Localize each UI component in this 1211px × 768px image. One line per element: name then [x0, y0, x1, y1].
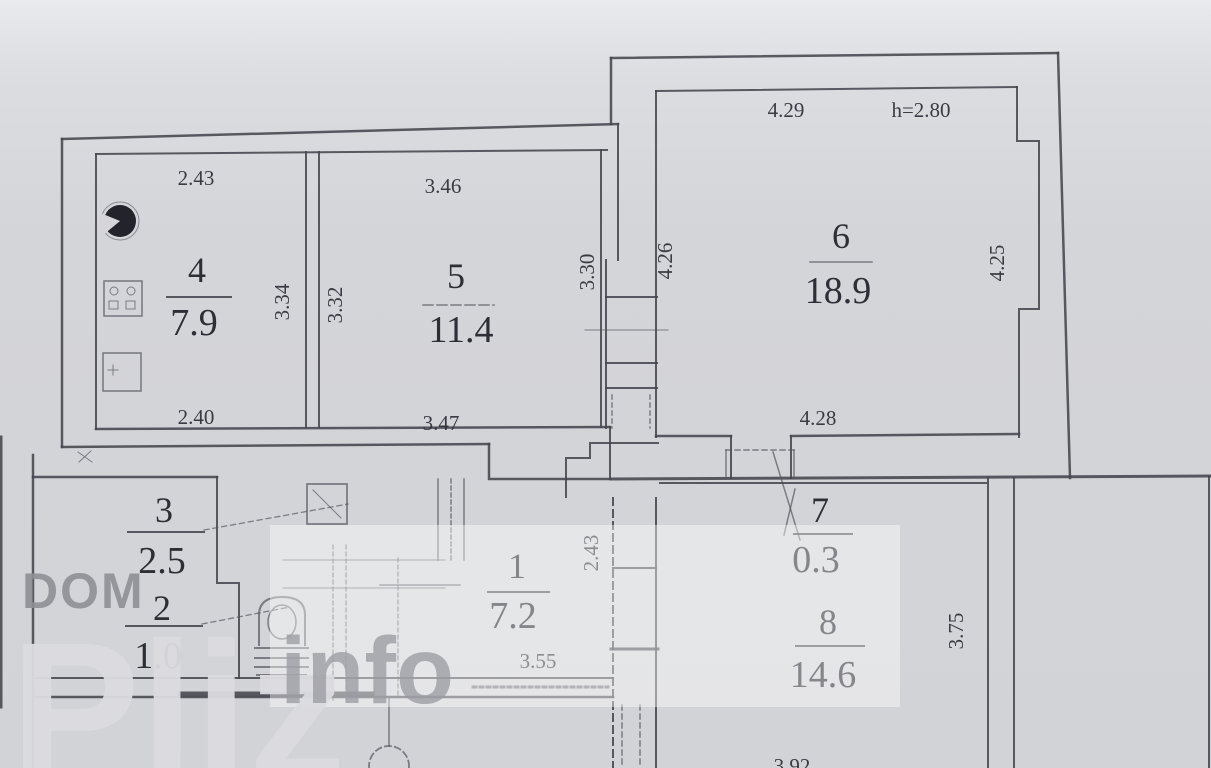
room4-number: 4: [188, 250, 206, 290]
dim-r6-right: 4.25: [985, 245, 1009, 282]
dim-r6-left: 4.26: [653, 243, 677, 280]
dim-r4-top: 2.43: [178, 166, 215, 190]
dim-shaft: 3.30: [575, 254, 599, 291]
dim-r5-top: 3.46: [425, 174, 462, 198]
cabinet-icon: [103, 353, 141, 391]
dim-r5-bottom: 3.47: [423, 411, 460, 435]
room6-number: 6: [832, 216, 850, 256]
kitchen-sink-icon: [98, 202, 139, 240]
washbasin-icon: [307, 484, 347, 524]
watermark-info: info: [280, 618, 454, 724]
room7-number: 7: [811, 490, 829, 530]
room3-area: 2.5: [138, 540, 186, 582]
dim-r4-right: 3.34: [270, 283, 294, 320]
room5-area: 11.4: [428, 309, 493, 351]
dim-r8-right: 3.75: [944, 613, 968, 650]
dim-r6-bottom: 4.28: [800, 406, 837, 430]
dim-ceiling-height: h=2.80: [891, 98, 950, 122]
dim-r5-left: 3.32: [323, 287, 347, 324]
room3-number: 3: [155, 490, 173, 530]
room4-area: 7.9: [170, 302, 218, 344]
floor-plan-drawing: 2.43 3.46 4.29 h=2.80 2.40 3.47 4.28 3.5…: [0, 0, 1211, 768]
dim-r6-top: 4.29: [768, 98, 805, 122]
room6-area: 18.9: [805, 270, 872, 312]
room5-number: 5: [447, 256, 465, 296]
stove-icon: [104, 281, 142, 316]
dim-r8-bottom: 3.92: [774, 754, 811, 768]
dim-r4-bottom: 2.40: [178, 405, 215, 429]
floor-plan-page: 2.43 3.46 4.29 h=2.80 2.40 3.47 4.28 3.5…: [0, 0, 1211, 768]
